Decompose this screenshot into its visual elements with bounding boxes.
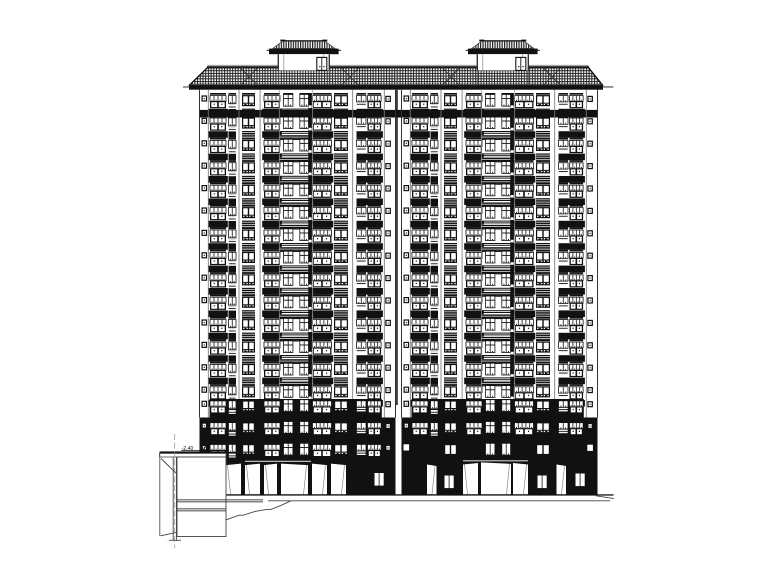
svg-text:-2.40: -2.40 [182,446,194,452]
